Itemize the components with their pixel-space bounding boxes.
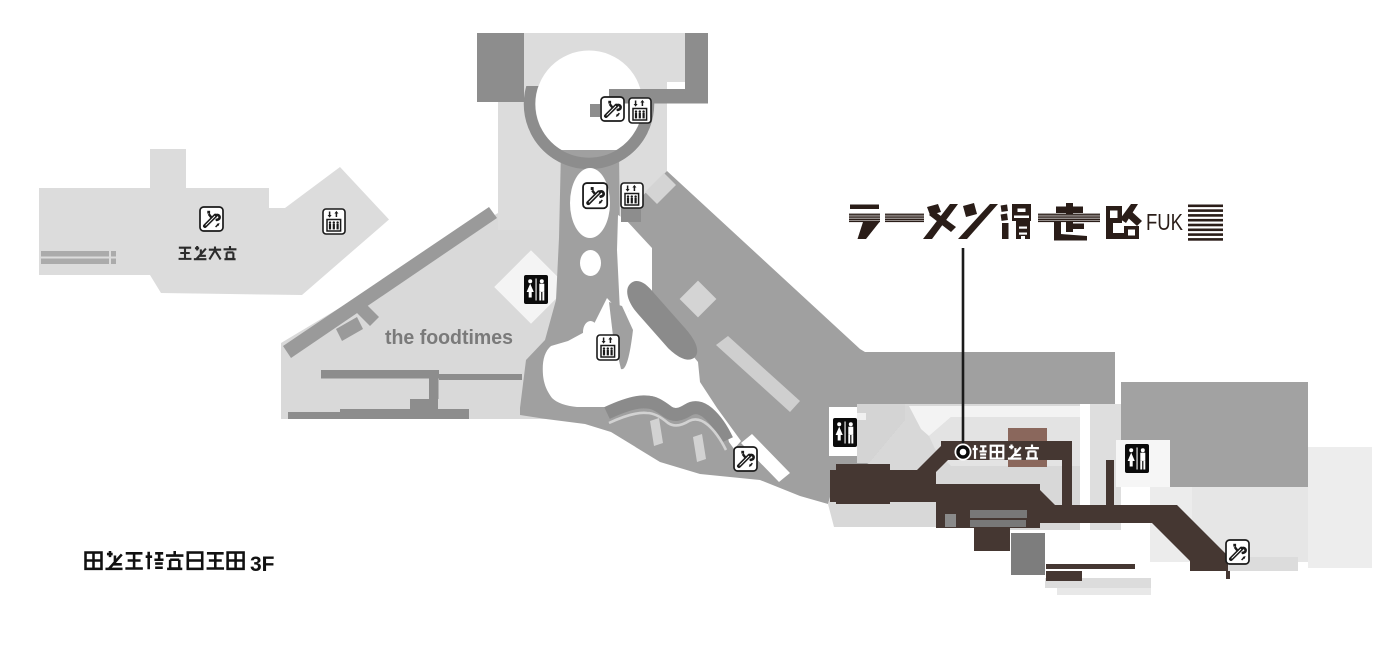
svg-text:3F: 3F xyxy=(250,553,275,576)
svg-text:the foodtimes: the foodtimes xyxy=(385,326,513,349)
svg-text:FUK: FUK xyxy=(1146,209,1184,235)
